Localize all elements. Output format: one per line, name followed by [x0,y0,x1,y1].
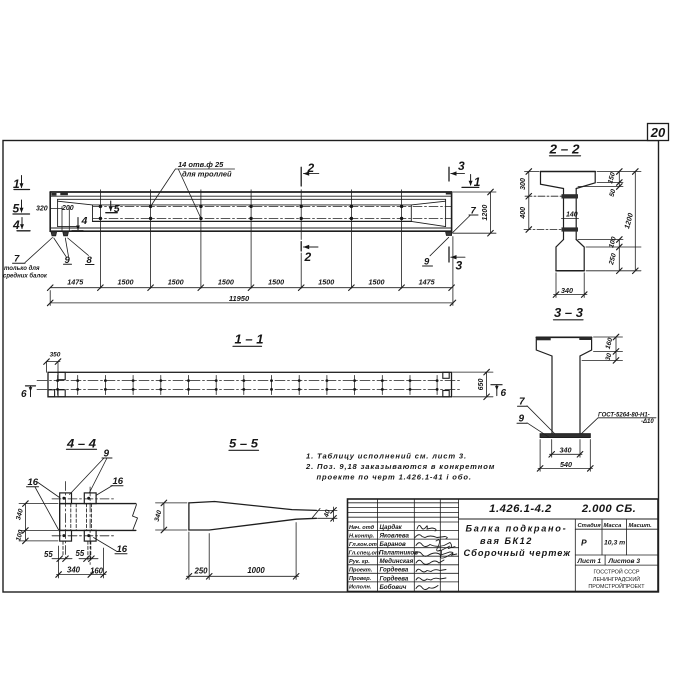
svg-text:Листов 3: Листов 3 [608,558,641,565]
svg-text:Н.контр.: Н.контр. [349,533,375,539]
svg-text:3: 3 [456,259,463,273]
svg-text:1200: 1200 [480,205,489,221]
svg-text:для троллей: для троллей [182,170,232,179]
svg-text:1500: 1500 [168,278,184,287]
svg-text:10,3 т: 10,3 т [604,540,625,547]
svg-text:1500: 1500 [268,278,284,287]
svg-text:Рук. гр.: Рук. гр. [349,559,370,565]
svg-text:1500: 1500 [318,278,334,287]
svg-text:200: 200 [61,205,74,212]
svg-text:Стадия: Стадия [578,523,602,529]
svg-text:1500: 1500 [369,278,385,287]
svg-text:3: 3 [458,159,465,173]
svg-text:Яковлева: Яковлева [379,533,410,540]
svg-text:Провер.: Провер. [349,576,372,582]
svg-text:650: 650 [478,379,485,391]
svg-text:2.000 СБ.: 2.000 СБ. [581,503,636,515]
svg-text:Масшт.: Масшт. [629,523,653,529]
svg-text:Лист 1: Лист 1 [577,558,602,565]
svg-text:340: 340 [561,286,573,295]
svg-text:средних балок: средних балок [3,272,48,279]
svg-text:5: 5 [114,203,120,215]
svg-text:55: 55 [76,549,85,558]
svg-text:1000: 1000 [247,566,265,575]
svg-text:Гордеева: Гордеева [380,567,409,574]
svg-text:1200: 1200 [622,212,635,230]
svg-text:340: 340 [560,446,572,455]
svg-text:400: 400 [520,207,527,220]
svg-text:50: 50 [609,188,618,197]
svg-text:Балка подкрано-: Балка подкрано- [466,524,568,534]
svg-text:20: 20 [650,125,666,140]
svg-text:6: 6 [501,388,507,399]
svg-text:только для: только для [4,266,40,272]
svg-text:Гл.спец.от: Гл.спец.от [349,550,380,556]
svg-text:вая БК12: вая БК12 [480,536,533,546]
svg-text:14 отв.ф 25: 14 отв.ф 25 [178,160,224,169]
svg-text:Гордеева: Гордеева [380,575,409,582]
svg-text:2: 2 [307,161,315,175]
svg-text:Нач. отд: Нач. отд [349,525,375,531]
svg-text:Сборочный чертеж: Сборочный чертеж [464,548,572,558]
svg-text:3 – 3: 3 – 3 [554,306,583,320]
svg-text:2 – 2: 2 – 2 [548,143,579,157]
svg-text:5 – 5: 5 – 5 [229,436,258,450]
svg-text:Цардак: Цардак [380,524,403,531]
svg-text:Палатников: Палатников [379,550,418,557]
svg-text:Бобович: Бобович [380,584,407,591]
svg-text:-Δ10: -Δ10 [641,419,654,425]
svg-text:ЛЕНИНГРАДСКИЙ: ЛЕНИНГРАДСКИЙ [593,575,640,583]
svg-text:160: 160 [90,567,104,576]
svg-text:Масса: Масса [604,523,623,529]
svg-text:4: 4 [81,215,88,227]
svg-text:Мединская: Мединская [380,558,414,565]
svg-text:340: 340 [67,566,81,575]
svg-text:Р: Р [581,538,587,548]
svg-text:11950: 11950 [229,294,250,303]
svg-text:6: 6 [21,389,27,400]
svg-text:2: 2 [304,250,312,264]
svg-text:Гл.кон.от: Гл.кон.от [349,542,377,548]
svg-text:Исполн.: Исполн. [349,585,372,591]
svg-text:1 – 1: 1 – 1 [235,333,264,347]
svg-text:проекте по черт 1.426.1-41 і о: проекте по черт 1.426.1-41 і обо. [317,473,472,482]
svg-text:1. Таблицу исполнений см. лис: 1. Таблицу исполнений см. лист 3. [306,452,467,461]
svg-text:250: 250 [608,253,618,267]
svg-text:4 – 4: 4 – 4 [66,436,96,450]
svg-text:540: 540 [560,460,572,469]
svg-text:140: 140 [566,212,578,219]
svg-text:250: 250 [193,567,208,576]
svg-text:160: 160 [605,337,615,350]
svg-text:ГОССТРОЙ СССР: ГОССТРОЙ СССР [593,568,639,576]
svg-text:Баранов: Баранов [380,541,407,548]
svg-text:1475: 1475 [419,278,436,287]
svg-text:1500: 1500 [118,278,134,287]
svg-text:Проект.: Проект. [349,568,373,574]
svg-text:300: 300 [520,178,527,190]
svg-text:1500: 1500 [218,278,234,287]
svg-text:2. Поз. 9,18 заказываются в ко: 2. Поз. 9,18 заказываются в конкретном [305,462,495,471]
svg-text:1.426.1-4.2: 1.426.1-4.2 [489,503,552,515]
svg-text:320: 320 [36,206,48,213]
svg-text:340: 340 [15,508,25,521]
svg-text:350: 350 [50,352,61,359]
svg-text:100: 100 [15,529,25,542]
svg-text:55: 55 [44,550,53,559]
svg-text:4: 4 [12,218,20,232]
svg-text:ПРОМСТРОЙПРОЕКТ: ПРОМСТРОЙПРОЕКТ [588,582,645,590]
svg-text:1475: 1475 [67,278,84,287]
svg-text:340: 340 [154,510,164,523]
